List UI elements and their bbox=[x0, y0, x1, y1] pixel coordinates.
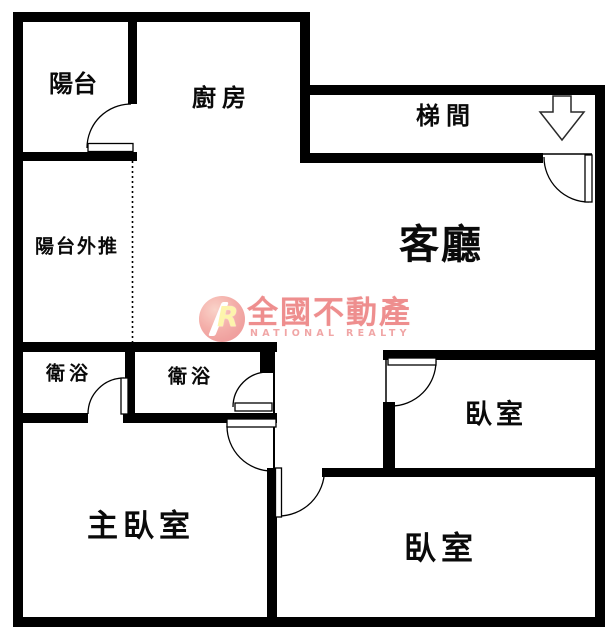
bathroom1-door-leaf bbox=[121, 378, 128, 414]
stair-door-leaf bbox=[585, 155, 592, 202]
wall-outer-left bbox=[13, 12, 23, 627]
room-label-bedroom-right: 臥室 bbox=[465, 402, 527, 429]
bathroom1-door-arc bbox=[88, 378, 124, 414]
room-label-bathroom-2: 衛浴 bbox=[168, 368, 214, 387]
right-bedroom-door-leaf bbox=[388, 358, 436, 365]
bathroom2-door-arc bbox=[233, 372, 268, 407]
wall-stairwell-bottom bbox=[300, 153, 543, 163]
balcony-door-leaf bbox=[88, 144, 133, 152]
wall-bedrooms-divider bbox=[322, 468, 597, 477]
room-label-stairwell: 梯間 bbox=[416, 104, 476, 128]
room-label-master-bedroom: 主臥室 bbox=[87, 512, 195, 543]
room-label-living-room: 客廳 bbox=[399, 225, 483, 265]
wall-bath2-right-stub bbox=[260, 342, 275, 373]
master-door-leaf bbox=[227, 419, 276, 427]
wall-outer-bottom bbox=[13, 617, 605, 627]
right-bedroom-door-arc bbox=[391, 361, 436, 406]
wall-living-south bbox=[13, 342, 277, 352]
bottom-bedroom-door-arc bbox=[279, 470, 325, 516]
room-label-balcony: 陽台 bbox=[49, 72, 97, 96]
room-label-kitchen: 廚房 bbox=[192, 86, 252, 110]
doors bbox=[87, 104, 592, 517]
wall-balcony-bottom bbox=[13, 152, 137, 161]
wall-bath-bottom-left bbox=[13, 413, 88, 423]
partition-lines bbox=[274, 154, 592, 470]
wall-balcony-right bbox=[128, 12, 137, 104]
room-label-balcony-extension: 陽台外推 bbox=[35, 238, 119, 257]
wall-stairwell-top bbox=[300, 85, 605, 95]
bathroom2-door-leaf bbox=[235, 403, 272, 411]
room-label-bathroom-1: 衛浴 bbox=[46, 365, 92, 384]
stair-down-arrow-icon bbox=[540, 96, 584, 140]
floor-plan: 陽台 廚房 梯間 陽台外推 客廳 衛浴 衛浴 臥室 主臥室 臥室 R 全國不動產… bbox=[0, 0, 611, 636]
wall-outer-top bbox=[13, 12, 310, 22]
balcony-door-arc bbox=[87, 104, 131, 148]
wall-bedroom-right-left bbox=[383, 402, 395, 477]
room-label-bedroom-bottom: 臥室 bbox=[404, 532, 478, 564]
master-door-arc bbox=[227, 426, 272, 471]
stair-door-arc bbox=[544, 157, 589, 202]
bottom-bedroom-door-leaf bbox=[276, 468, 282, 517]
